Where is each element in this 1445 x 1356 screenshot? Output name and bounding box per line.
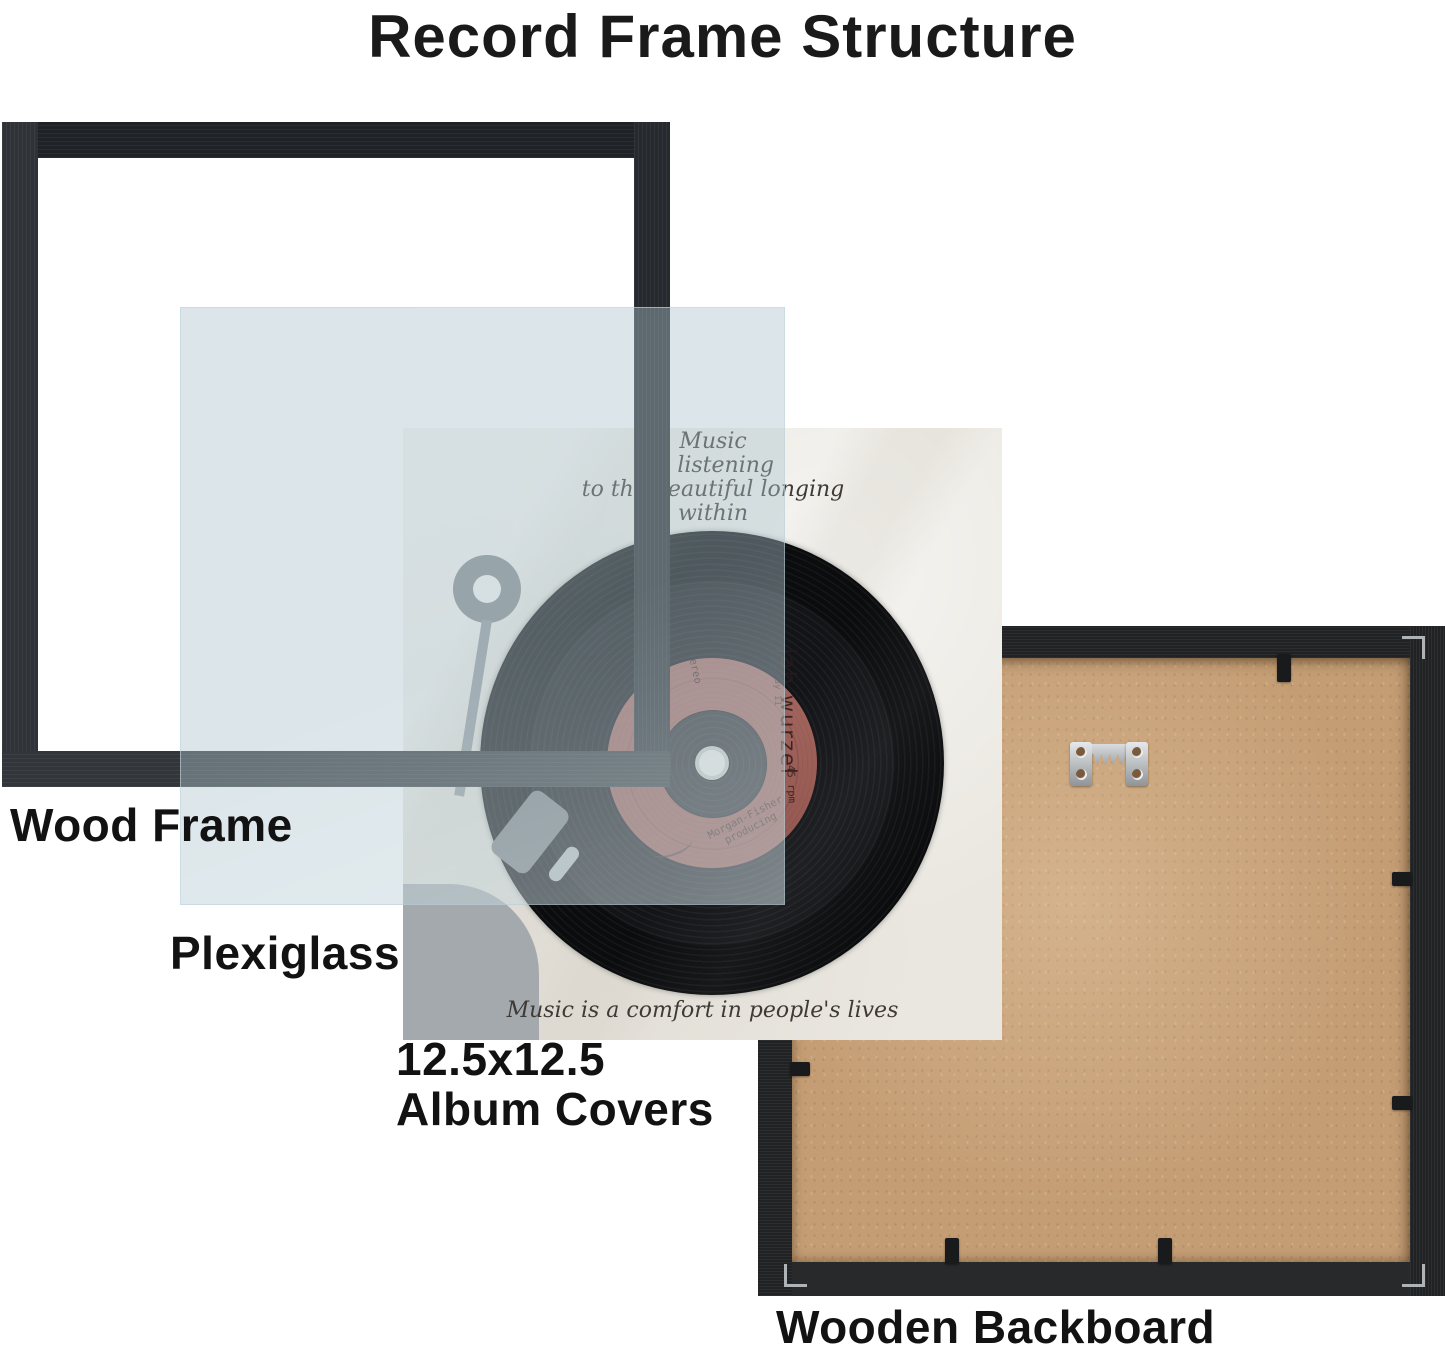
album-covers-label: 12.5x12.5 Album Covers xyxy=(396,1034,714,1134)
page-title: Record Frame Structure xyxy=(0,2,1445,71)
wood-frame-top-bar xyxy=(2,122,670,158)
hanger-plate xyxy=(1070,742,1092,786)
hanger-hole xyxy=(1076,769,1087,780)
corner-bracket-icon xyxy=(1402,636,1425,659)
hanger-plate xyxy=(1126,742,1148,786)
sawtooth-hanger-icon xyxy=(1070,742,1148,787)
retention-clip xyxy=(790,1062,810,1076)
wood-frame-label: Wood Frame xyxy=(10,800,293,850)
retention-clip xyxy=(1392,872,1412,886)
plexiglass-label: Plexiglass xyxy=(170,928,400,978)
hanger-hole xyxy=(1132,769,1143,780)
album-quote-bottom: Music is a comfort in people's lives xyxy=(403,998,1002,1023)
record-speed-text: 45 rpm xyxy=(784,765,797,803)
retention-clip xyxy=(1277,654,1291,682)
retention-clip xyxy=(945,1238,959,1264)
wooden-backboard-label: Wooden Backboard xyxy=(776,1302,1215,1352)
hanger-hole xyxy=(1132,747,1143,758)
backboard-frame-right xyxy=(1410,626,1445,1296)
backboard-frame-bottom xyxy=(758,1262,1445,1296)
wood-frame-left-bar xyxy=(2,122,38,787)
album-covers-label-line1: 12.5x12.5 xyxy=(396,1034,714,1084)
corner-bracket-icon xyxy=(784,1264,807,1287)
album-covers-label-line2: Album Covers xyxy=(396,1084,714,1134)
retention-clip xyxy=(1392,1096,1412,1110)
hanger-hole xyxy=(1076,747,1087,758)
corner-bracket-icon xyxy=(1402,1264,1425,1287)
record-frame-structure-diagram: Record Frame Structure xyxy=(0,0,1445,1356)
retention-clip xyxy=(1158,1238,1172,1264)
hanger-sawtooth-strip xyxy=(1092,744,1126,766)
